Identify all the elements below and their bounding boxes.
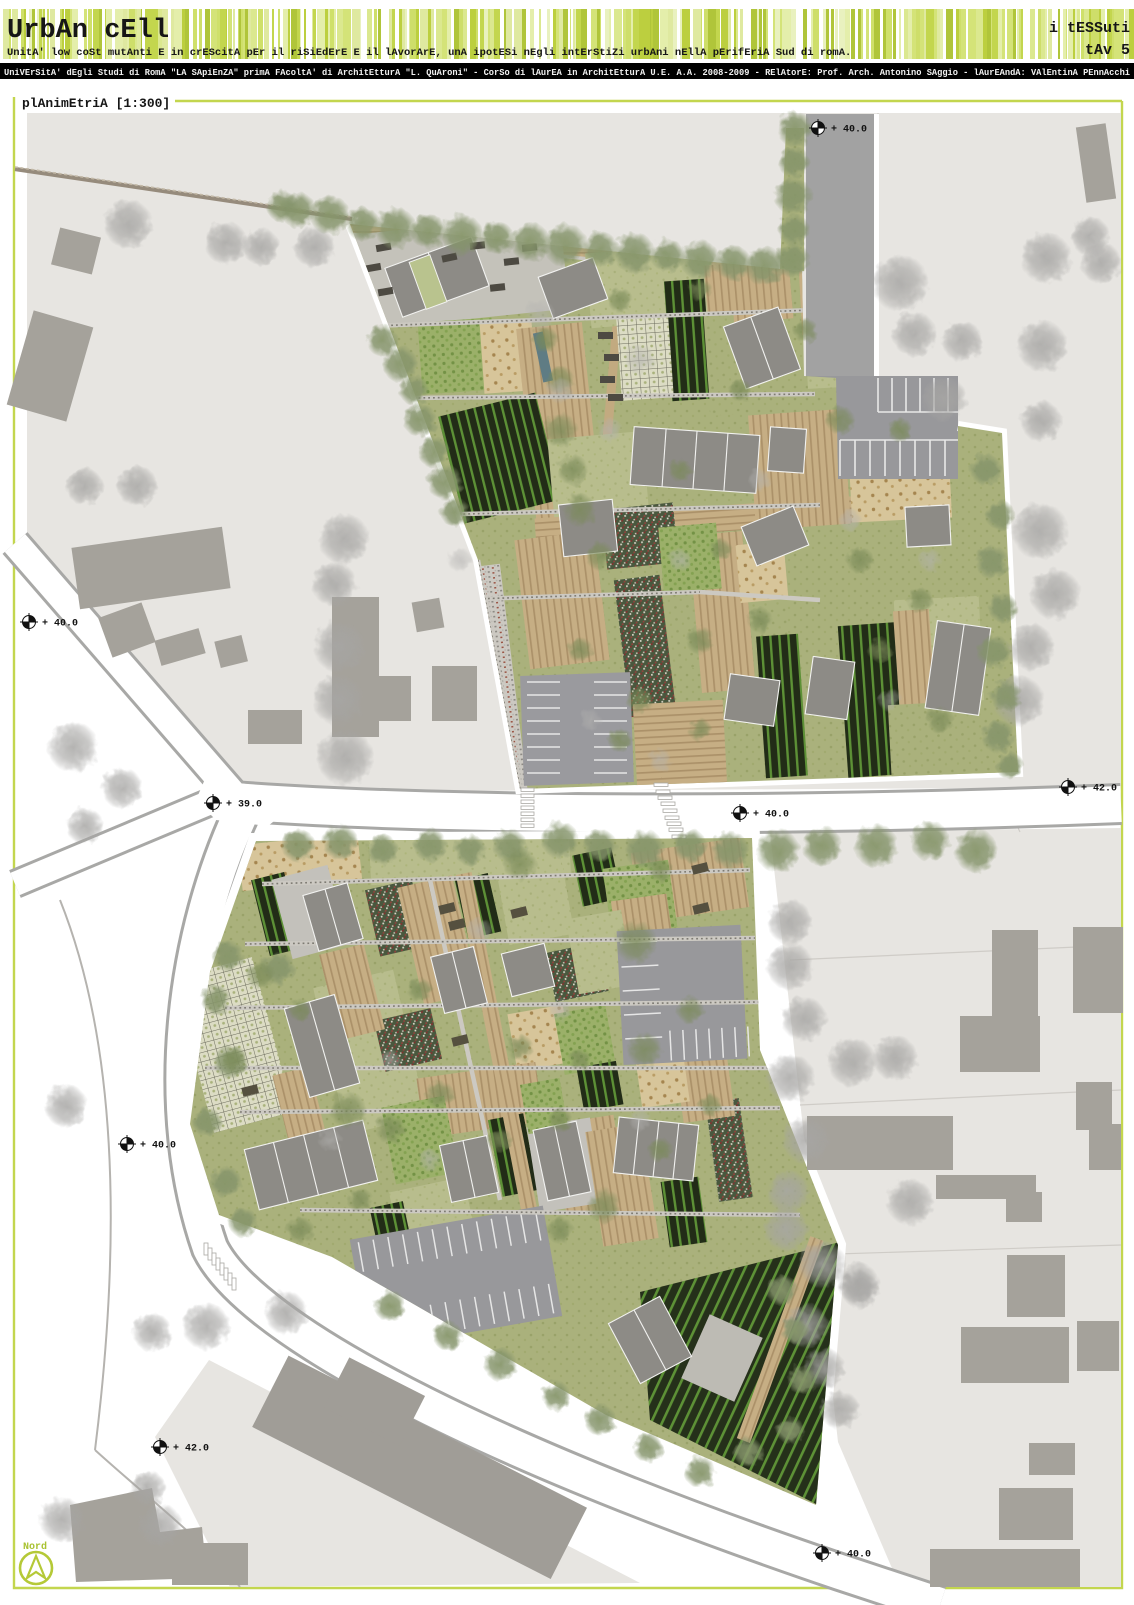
svg-text:UrbAn cEll: UrbAn cEll [7, 16, 169, 46]
svg-text:+ 40.0: + 40.0 [42, 619, 78, 630]
svg-text:tAv 5: tAv 5 [1085, 42, 1130, 59]
svg-text:UniVErSitA' dEgli Studi di Rom: UniVErSitA' dEgli Studi di RomA "LA SApi… [4, 68, 1131, 78]
svg-text:+ 42.0: + 42.0 [1081, 784, 1117, 795]
svg-text:i tESSuti: i tESSuti [1049, 20, 1130, 37]
svg-text:UnitA' low coSt mutAnti E in c: UnitA' low coSt mutAnti E in crEScitA pE… [7, 47, 851, 59]
svg-text:+ 40.0: + 40.0 [140, 1141, 176, 1152]
svg-text:+ 40.0: + 40.0 [753, 810, 789, 821]
svg-text:plAnimEtriA [1:300]: plAnimEtriA [1:300] [22, 96, 170, 111]
svg-text:+ 42.0: + 42.0 [173, 1444, 209, 1455]
svg-text:+ 39.0: + 39.0 [226, 800, 262, 811]
svg-text:+ 40.0: + 40.0 [831, 125, 867, 136]
svg-text:+ 40.0: + 40.0 [835, 1550, 871, 1561]
